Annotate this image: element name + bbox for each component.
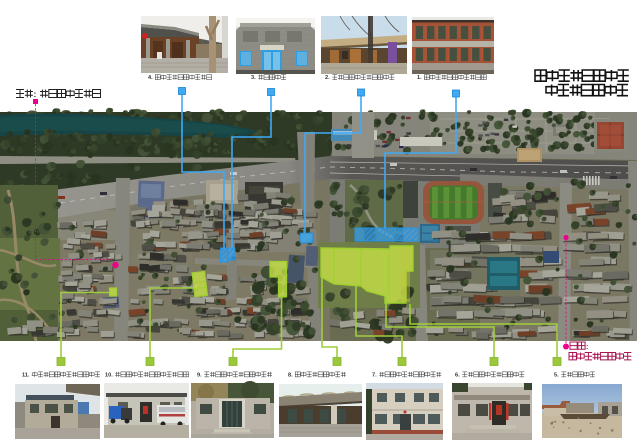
svg-text:11.: 11. xyxy=(22,373,30,379)
svg-text:5.: 5. xyxy=(554,373,559,379)
svg-text:9.: 9. xyxy=(197,373,202,379)
svg-text:10.: 10. xyxy=(105,373,113,379)
svg-text:6.: 6. xyxy=(455,373,460,379)
svg-text::: : xyxy=(34,89,37,99)
svg-text::: : xyxy=(586,342,589,351)
svg-text:1.: 1. xyxy=(417,75,422,81)
svg-text:7.: 7. xyxy=(372,373,377,379)
svg-text:2.: 2. xyxy=(325,75,330,81)
svg-text:8.: 8. xyxy=(288,373,293,379)
svg-text:3.: 3. xyxy=(251,75,256,81)
svg-text:4.: 4. xyxy=(148,75,153,81)
